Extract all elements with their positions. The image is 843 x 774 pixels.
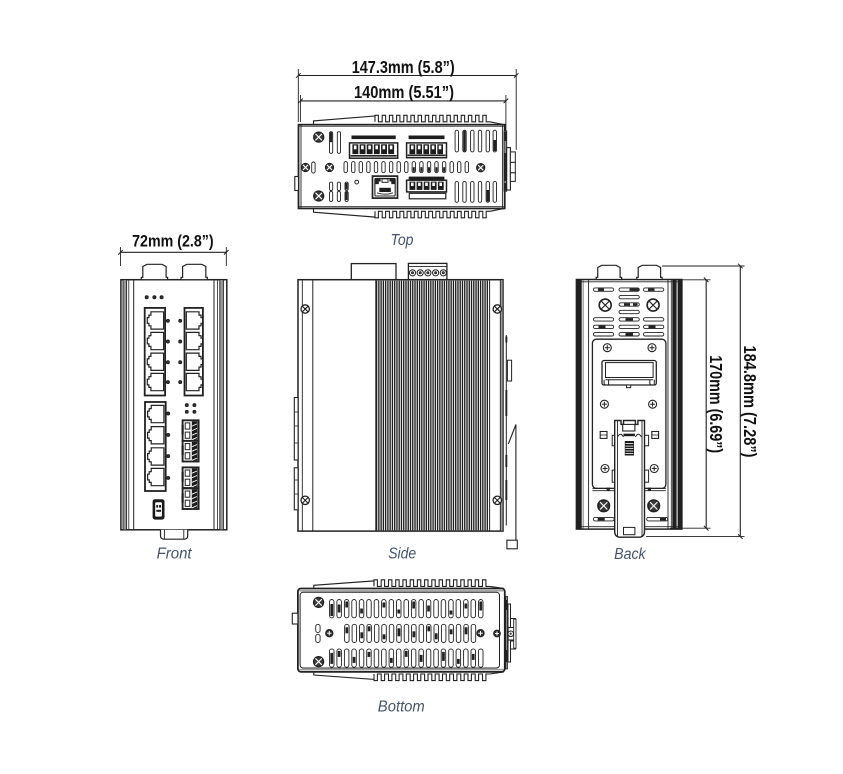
svg-text:184.8mm (7.28”): 184.8mm (7.28”): [740, 346, 760, 458]
svg-text:Side: Side: [388, 546, 416, 563]
svg-text:Bottom: Bottom: [378, 699, 425, 716]
svg-text:Front: Front: [157, 546, 193, 563]
svg-text:72mm (2.8”): 72mm (2.8”): [132, 232, 214, 250]
svg-text:147.3mm (5.8”): 147.3mm (5.8”): [352, 57, 455, 77]
svg-text:Back: Back: [614, 546, 647, 563]
svg-text:140mm (5.51”): 140mm (5.51”): [354, 82, 454, 102]
svg-text:170mm (6.69”): 170mm (6.69”): [706, 355, 726, 453]
svg-text:Top: Top: [391, 232, 414, 249]
